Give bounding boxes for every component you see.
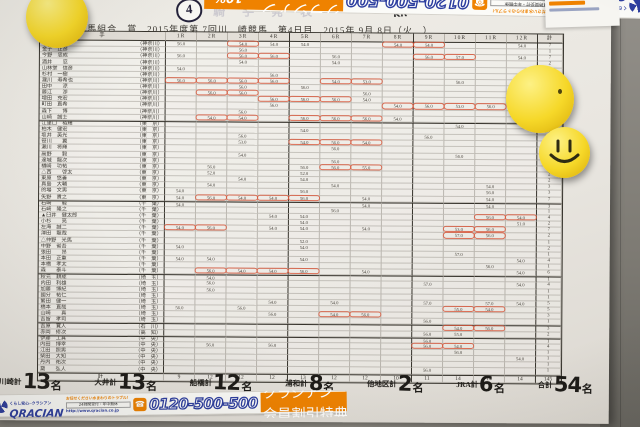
total-number: 54 [553,376,581,394]
smiley-magnet [539,127,590,178]
paper-sheet: くらし安心─クラシアン QRACIAN お任せください水まわりのトラブル！ 24… [0,0,611,424]
total-item: 船橋計12名 [190,374,253,391]
total-number: 12 [213,374,241,392]
qracian-banner-bottom: くらし安心─クラシアン QRACIAN お任せください水まわりのトラブル！ 24… [0,390,347,422]
table-header-cell: 11R [476,34,507,43]
total-item: 合計54名 [538,376,593,393]
total-number: 2 [398,375,412,393]
table-header-cell: 4R [259,33,290,42]
banner-url: http://www.qracian.co.jp [66,409,131,414]
weight-cell [257,367,288,373]
weight-cell [164,367,195,373]
qracian-banner: くらし安心─クラシアン QRACIAN お任せください水まわりのトラブル！ 24… [0,390,347,418]
total-suffix: 名 [146,382,157,391]
promo-text: 会員割引特典 [263,401,347,421]
qracian-swirl-icon [629,0,640,13]
total-suffix: 名 [413,384,424,393]
weight-cell [505,369,536,375]
total-item: 川崎計13名 [0,373,62,390]
table-header-cell: 5R [290,33,321,42]
total-number: 13 [22,373,50,391]
total-item: 大井計13名 [94,374,157,391]
handwritten-race-day-mark: 4 [175,0,203,24]
total-suffix: 名 [582,385,593,394]
table-header-cell: 計 [538,34,563,43]
table-header-cell: 12R [507,34,538,43]
banner-brand: QRACIAN [9,408,64,418]
table-header-cell: 10R [445,34,476,43]
total-label: 船橋計 [190,377,213,391]
total-number: 13 [117,373,145,391]
qracian-logo: くらし安心─クラシアン QRACIAN [0,392,63,419]
total-label: 合計 [538,379,553,393]
table-header-cell: 7R [352,33,383,42]
weight-cell [319,368,350,374]
total-number: 6 [479,376,493,394]
table-header-cell: 6R [321,33,352,42]
banner-phone-number: 0120-500-500 [347,0,470,12]
banner-promo-box: クラシアン 会員割引特典 10%OFF [260,391,347,412]
banner-offer-line1: お任せください水まわりのトラブル！ [66,395,131,401]
banner-offer-line2: 24時間受付・年中無休 [66,401,131,408]
banner-offers: お任せください水まわりのトラブル！ 24時間受付・年中無休 http://www… [66,395,131,414]
yellow-magnet-right [506,65,574,133]
freedial-phone-icon: ☎ [133,397,146,410]
jockey-table: 手1R2R3R4R5R6R7R8R9R10R11R12R計 聡人（神奈川）56.… [37,30,564,384]
banner-promo-box: クラシアン 会員割引特典 10%OFF [204,0,344,11]
banner-tagline: くらし安心─クラシアン [9,401,51,406]
promo-percent: 10%OFF [207,0,243,6]
smiley-face-icon [539,127,590,178]
qracian-swirl-icon [0,399,8,412]
total-item: JRA計6名 [456,376,505,393]
total-suffix: 名 [51,381,62,390]
table-header-cell: 2R [197,32,228,41]
sticker-card [545,0,620,28]
table-header-cell: 1R [166,32,197,41]
total-label: JRA計 [456,379,478,393]
weight-cell [350,368,381,374]
total-item: 他地区計2名 [367,375,424,392]
weight-cell: 56.0 [412,368,443,374]
freedial-phone-icon: ☎ [472,0,487,11]
total-suffix: 名 [494,384,505,393]
banner-phone-number: 0120-500-500 [149,394,258,412]
weight-cell [443,368,474,374]
total-label: 大井計 [94,377,117,391]
total-label: 川崎計 [0,376,21,390]
total-label: 他地区計 [367,378,397,392]
